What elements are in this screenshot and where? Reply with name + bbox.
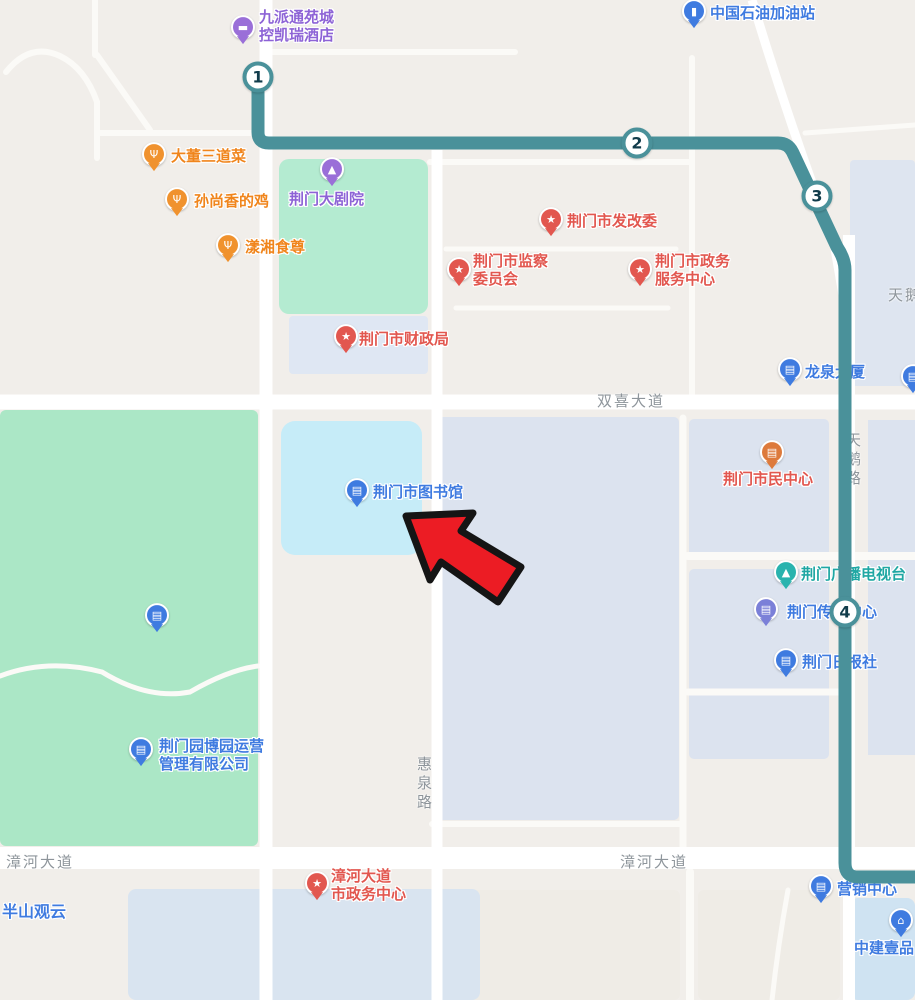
bottom-middle-block2 [698,890,840,1000]
hotel-label-line1: 九派通苑城 [259,8,334,26]
restaurant-sunshangxiang-label[interactable]: 孙尚香的鸡 [194,192,269,210]
restaurant-yangxiang-label[interactable]: 漾湘食尊 [245,238,305,256]
road-label-zhanghe-east: 漳河大道 [620,851,688,872]
restaurant-yangxiang-pin[interactable]: Ψ [216,233,240,257]
road-label-tiane-clipped: 天鹅 [888,284,915,305]
media-center-pin[interactable]: ▤ [754,597,778,621]
map-canvas[interactable]: 双喜大道 天鹅路 惠泉路 漳河大道 漳河大道 天鹅 ▬ 九派通苑城 控凯瑞酒店 … [0,0,915,1000]
jiancha-label-line1: 荆门市监察 [473,252,548,270]
road-label-zhanghe-west: 漳河大道 [6,851,74,872]
building-icon: ▤ [767,446,777,459]
waypoint-3-badge: 3 [802,181,833,212]
expo-park-company-line1: 荆门园博园运营 [159,737,264,755]
daily-news-label[interactable]: 荆门日报社 [802,653,877,671]
bed-icon: ▬ [238,21,248,34]
waypoint-4-badge: 4 [830,597,861,628]
fagaiwei-pin[interactable]: ★ [539,207,563,231]
gas-station-pin[interactable]: ▮ [682,0,706,23]
building-icon: ▤ [761,603,771,616]
marketing-center-pin[interactable]: ▤ [809,874,833,898]
citizen-center-pin[interactable]: ▤ [760,440,784,464]
star-icon: ★ [341,330,351,343]
library-big-block [438,417,679,820]
book-icon: ▤ [352,484,362,497]
park-poi-pin[interactable]: ▤ [145,603,169,627]
star-icon: ★ [312,877,322,890]
theater-icon: ▲ [328,163,336,176]
banshan-guanyun-label[interactable]: 半山观云 [2,903,66,921]
restaurant-icon: Ψ [224,239,233,252]
expo-park-company-pin[interactable]: ▤ [129,737,153,761]
expo-park-company-label[interactable]: 荆门园博园运营 管理有限公司 [159,737,264,773]
zhengwu-pin[interactable]: ★ [628,257,652,281]
library-label[interactable]: 荆门市图书馆 [373,483,463,501]
road-label-huiquan: 惠泉路 [417,755,434,812]
road-diagonal-ne [752,0,849,330]
zhanghe-gov-center-line2: 市政务中心 [331,885,406,903]
citizen-center-label[interactable]: 荆门市民中心 [723,470,813,488]
star-icon: ★ [454,263,464,276]
broadcast-tv-label[interactable]: 荆门广播电视台 [801,565,906,583]
longquan-tower-pin[interactable]: ▤ [778,357,802,381]
road-label-tiane: 天鹅路 [846,431,863,488]
zhanghe-gov-center-pin[interactable]: ★ [305,871,329,895]
caizhengju-label[interactable]: 荆门市财政局 [359,330,449,348]
park-block [0,410,258,846]
document-icon: ▤ [152,609,162,622]
hotel-pin[interactable]: ▬ [231,15,255,39]
restaurant-dadong-pin[interactable]: Ψ [142,142,166,166]
topright-block [850,160,915,386]
road-label-shuangxi: 双喜大道 [597,390,665,411]
caizhengju-pin[interactable]: ★ [334,324,358,348]
bottom-left-block [128,889,480,1000]
restaurant-dadong-label[interactable]: 大董三道菜 [171,147,246,165]
broadcast-tv-pin[interactable]: ▲ [774,560,798,584]
bottom-middle-block [448,890,680,1000]
building-icon: ▤ [816,880,826,893]
grand-theater-pin[interactable]: ▲ [320,157,344,181]
longquan-tower-label[interactable]: 龙泉大厦 [805,363,865,381]
library-pin[interactable]: ▤ [345,478,369,502]
star-icon: ★ [635,263,645,276]
star-icon: ★ [546,213,556,226]
restaurant-icon: Ψ [173,193,182,206]
newspaper-icon: ▤ [781,654,791,667]
antenna-icon: ▲ [782,566,790,579]
gas-station-label[interactable]: 中国石油加油站 [710,4,815,22]
building-icon: ▤ [136,743,146,756]
zhongjian-yipin-label[interactable]: 中建壹品 [854,939,914,957]
grand-theater-label[interactable]: 荆门大剧院 [289,190,364,208]
citizen-center-block [689,419,829,557]
building-icon: ▤ [785,363,795,376]
restaurant-sunshangxiang-pin[interactable]: Ψ [165,187,189,211]
expo-park-company-line2: 管理有限公司 [159,755,249,773]
jiancha-label[interactable]: 荆门市监察 委员会 [473,252,548,288]
restaurant-icon: Ψ [150,148,159,161]
zhanghe-gov-center-label[interactable]: 漳河大道 市政务中心 [331,867,406,903]
fuel-icon: ▮ [691,5,697,18]
document-icon: ▤ [908,370,915,383]
marketing-center-label[interactable]: 营销中心 [837,880,897,898]
daily-news-pin[interactable]: ▤ [774,648,798,672]
waypoint-2-badge: 2 [622,128,653,159]
hotel-label-line2: 控凯瑞酒店 [259,26,334,44]
zhanghe-gov-center-line1: 漳河大道 [331,867,391,885]
waypoint-1-badge: 1 [243,62,274,93]
home-icon: ⌂ [898,914,905,927]
jiancha-label-line2: 委员会 [473,270,518,288]
hotel-label[interactable]: 九派通苑城 控凯瑞酒店 [259,8,334,44]
zhengwu-label[interactable]: 荆门市政务 服务中心 [655,252,730,288]
jiancha-pin[interactable]: ★ [447,257,471,281]
fagaiwei-label[interactable]: 荆门市发改委 [567,212,657,230]
right-edge-block [868,420,915,755]
zhongjian-yipin-pin[interactable]: ⌂ [889,908,913,932]
theater-park-block [279,159,428,314]
zhengwu-label-line1: 荆门市政务 [655,252,730,270]
zhengwu-label-line2: 服务中心 [655,270,715,288]
